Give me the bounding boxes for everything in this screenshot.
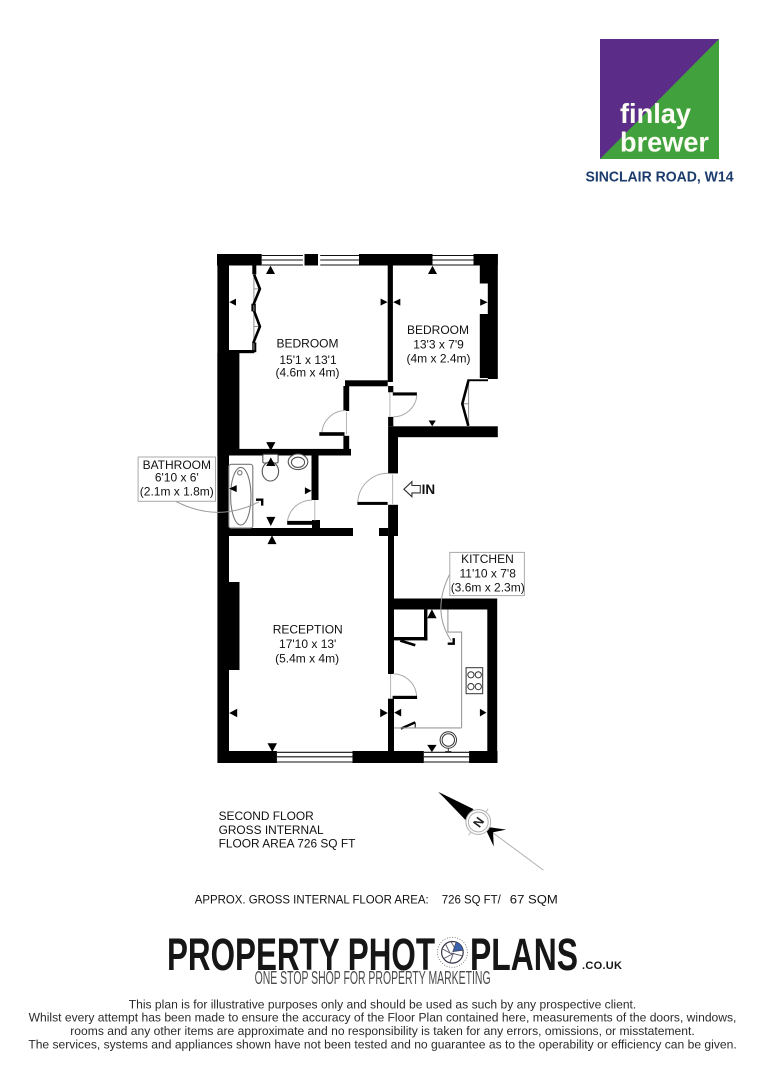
- svg-text:SINCLAIR ROAD, W14: SINCLAIR ROAD, W14: [586, 169, 735, 186]
- svg-text:11'10 x 7'8: 11'10 x 7'8: [459, 567, 516, 581]
- svg-text:(5.4m x 4m): (5.4m x 4m): [275, 651, 339, 665]
- svg-text:GROSS INTERNAL: GROSS INTERNAL: [219, 823, 324, 837]
- svg-text:726 SQ FT/: 726 SQ FT/: [442, 892, 502, 906]
- svg-text:(4m x 2.4m): (4m x 2.4m): [406, 351, 470, 365]
- svg-text:SECOND FLOOR: SECOND FLOOR: [219, 809, 315, 823]
- svg-text:BEDROOM: BEDROOM: [276, 337, 338, 351]
- svg-text:.CO.UK: .CO.UK: [582, 960, 622, 972]
- svg-text:IN: IN: [422, 482, 436, 497]
- svg-text:(2.1m x 1.8m): (2.1m x 1.8m): [140, 485, 214, 499]
- svg-text:brewer: brewer: [620, 127, 709, 158]
- svg-text:RECEPTION: RECEPTION: [273, 622, 343, 636]
- svg-text:APPROX. GROSS INTERNAL FLOOR A: APPROX. GROSS INTERNAL FLOOR AREA:: [195, 892, 429, 906]
- svg-text:6'10 x 6': 6'10 x 6': [155, 471, 199, 485]
- svg-text:finlay: finlay: [620, 98, 691, 129]
- svg-text:(4.6m x 4m): (4.6m x 4m): [275, 366, 339, 380]
- svg-text:Whilst every attempt has been: Whilst every attempt has been made to en…: [29, 1011, 737, 1025]
- svg-text:(3.6m x 2.3m): (3.6m x 2.3m): [451, 581, 525, 595]
- svg-text:17'10 x 13': 17'10 x 13': [279, 637, 336, 651]
- svg-text:13'3 x 7'9: 13'3 x 7'9: [413, 337, 464, 351]
- svg-text:KITCHEN: KITCHEN: [461, 552, 514, 566]
- svg-text:BEDROOM: BEDROOM: [407, 323, 469, 337]
- svg-text:This plan is for illustrative: This plan is for illustrative purposes o…: [129, 997, 637, 1011]
- svg-text:FLOOR AREA 726 SQ FT: FLOOR AREA 726 SQ FT: [219, 837, 356, 851]
- svg-text:67 SQM: 67 SQM: [510, 892, 558, 906]
- svg-text:The services, systems and appl: The services, systems and appliances sho…: [28, 1038, 736, 1052]
- svg-text:rooms and any other items are: rooms and any other items are approximat…: [70, 1024, 694, 1038]
- svg-text:ONE STOP SHOP FOR PROPERTY MAR: ONE STOP SHOP FOR PROPERTY MARKETING: [255, 968, 491, 988]
